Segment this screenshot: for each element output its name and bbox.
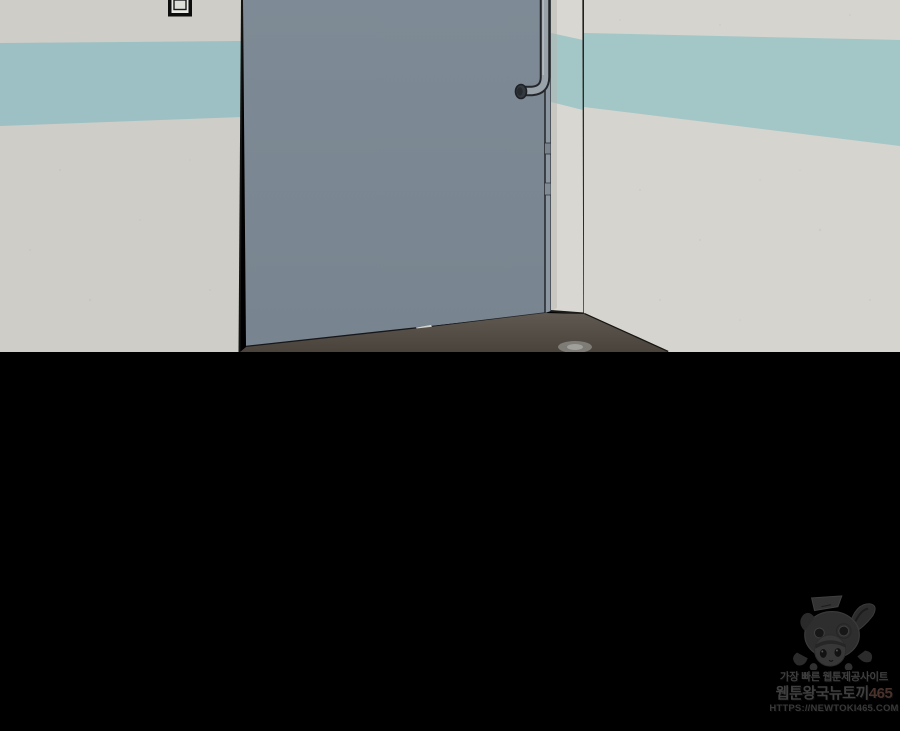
door <box>243 0 545 347</box>
handle-mount-cap-inner <box>517 87 523 95</box>
scene-illustration <box>0 0 900 352</box>
letterbox-panel <box>0 352 900 731</box>
door-hinge-notch <box>545 183 552 195</box>
mascot-bunny-girl-icon <box>788 594 880 670</box>
watermark-site-name-text: 웹툰왕국뉴토끼 <box>776 685 869 702</box>
watermark-tagline: 가장 빠른 웹툰제공사이트 <box>768 672 900 683</box>
accent-stripe-left <box>0 41 242 126</box>
watermark-site-name: 웹툰왕국뉴토끼465 <box>768 686 900 701</box>
wall-sign <box>168 0 192 17</box>
watermark-url: HTTPS://NEWTOKI465.COM <box>768 704 900 714</box>
comic-panel: 가장 빠른 웹툰제공사이트 웹툰왕국뉴토끼465 HTTPS://NEWTOKI… <box>0 0 900 731</box>
floor-reflection-core <box>567 344 583 350</box>
corner-line <box>583 0 584 314</box>
scene-svg <box>0 0 900 352</box>
watermark-site-number: 465 <box>869 685 893 702</box>
jamb-shadow <box>551 0 557 311</box>
watermark: 가장 빠른 웹툰제공사이트 웹툰왕국뉴토끼465 HTTPS://NEWTOKI… <box>768 594 900 713</box>
door-latch-notch <box>545 143 552 154</box>
